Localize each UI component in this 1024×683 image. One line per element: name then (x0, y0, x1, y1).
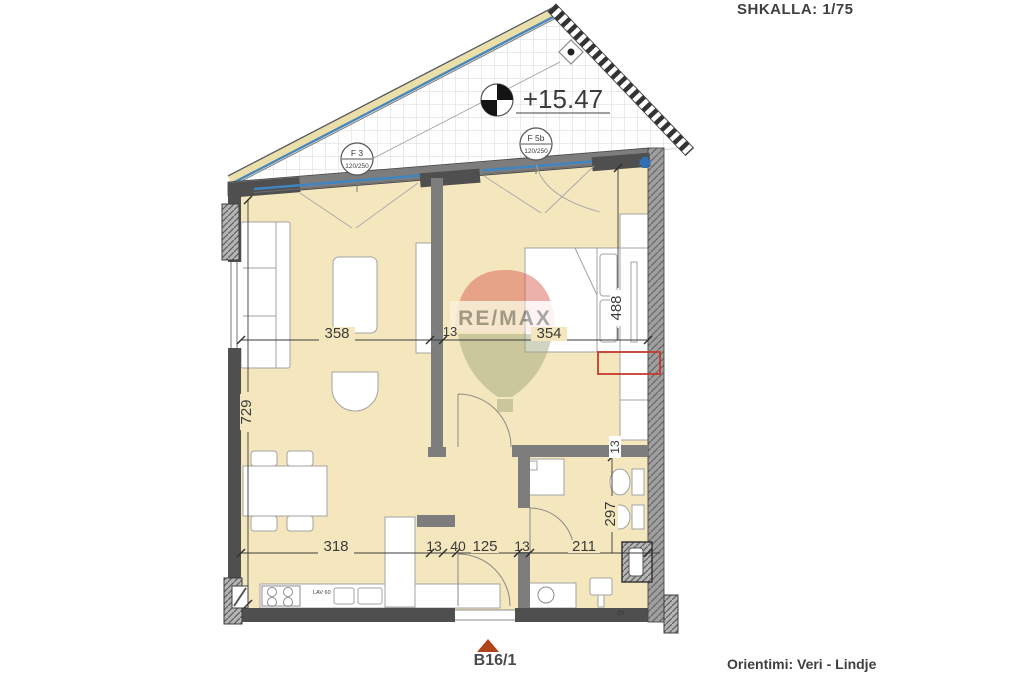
window-tag-name: F 5b (527, 133, 544, 143)
wall-bottom-left (228, 608, 455, 622)
wall-bath-left (518, 457, 530, 508)
floorplan-page: SHKALLA: 1/75 (0, 0, 1024, 683)
wall-bath-left-lower (518, 552, 530, 608)
kitchen-counter-label: LAV 60 (313, 590, 331, 596)
dim-label: 40 (450, 538, 466, 554)
coffee-table (333, 257, 377, 333)
dim-label: 125 (472, 538, 497, 555)
dim-label: 297 (602, 501, 619, 526)
pillow (600, 254, 617, 296)
kitchen-counter (260, 584, 500, 608)
column (222, 204, 239, 260)
toilet (610, 469, 644, 495)
dim-label: 488 (608, 295, 625, 320)
wall-bedroom-bath (512, 445, 648, 457)
dim-label: 211 (572, 538, 596, 555)
wall-kitchen-stub (417, 515, 455, 527)
elevation-label: +15.47 (523, 84, 603, 114)
scale-label: SHKALLA: 1/75 (737, 1, 854, 18)
window-tag-size: 120/250 (345, 163, 369, 170)
orientation-label: Orientimi: Veri - Lindje (727, 656, 876, 672)
dim-label: 318 (323, 538, 348, 555)
dim-label: 13 (426, 538, 442, 554)
window-tag-name: F 3 (351, 148, 364, 158)
entrance-marker-icon (477, 639, 499, 652)
corner-block (664, 595, 678, 633)
elevation-benchmark-icon (481, 84, 513, 116)
wall-living-hall (431, 178, 443, 447)
washing-machine (528, 583, 576, 608)
wall-foot (428, 447, 446, 457)
window-tag-size: 120/250 (524, 148, 548, 155)
unit-label: B16/1 (455, 652, 535, 670)
shower (526, 459, 564, 495)
fridge (385, 517, 415, 607)
dim-label: 354 (536, 325, 561, 342)
kitchen-sink-2 (358, 588, 382, 604)
dim-label: 13 (608, 440, 622, 454)
wardrobe (620, 214, 648, 440)
dim-label: 13 (514, 538, 530, 554)
wall-bottom-right (515, 608, 664, 622)
dim-label: 729 (238, 399, 255, 424)
duct-shaft (622, 542, 652, 582)
floorplan-drawing: +15.47 (0, 0, 1024, 683)
kitchen-sink (334, 588, 354, 604)
dim-label: 13 (443, 324, 457, 339)
dim-label: 9 (616, 610, 627, 616)
window-left (226, 262, 243, 348)
dim-label: 358 (324, 325, 349, 342)
